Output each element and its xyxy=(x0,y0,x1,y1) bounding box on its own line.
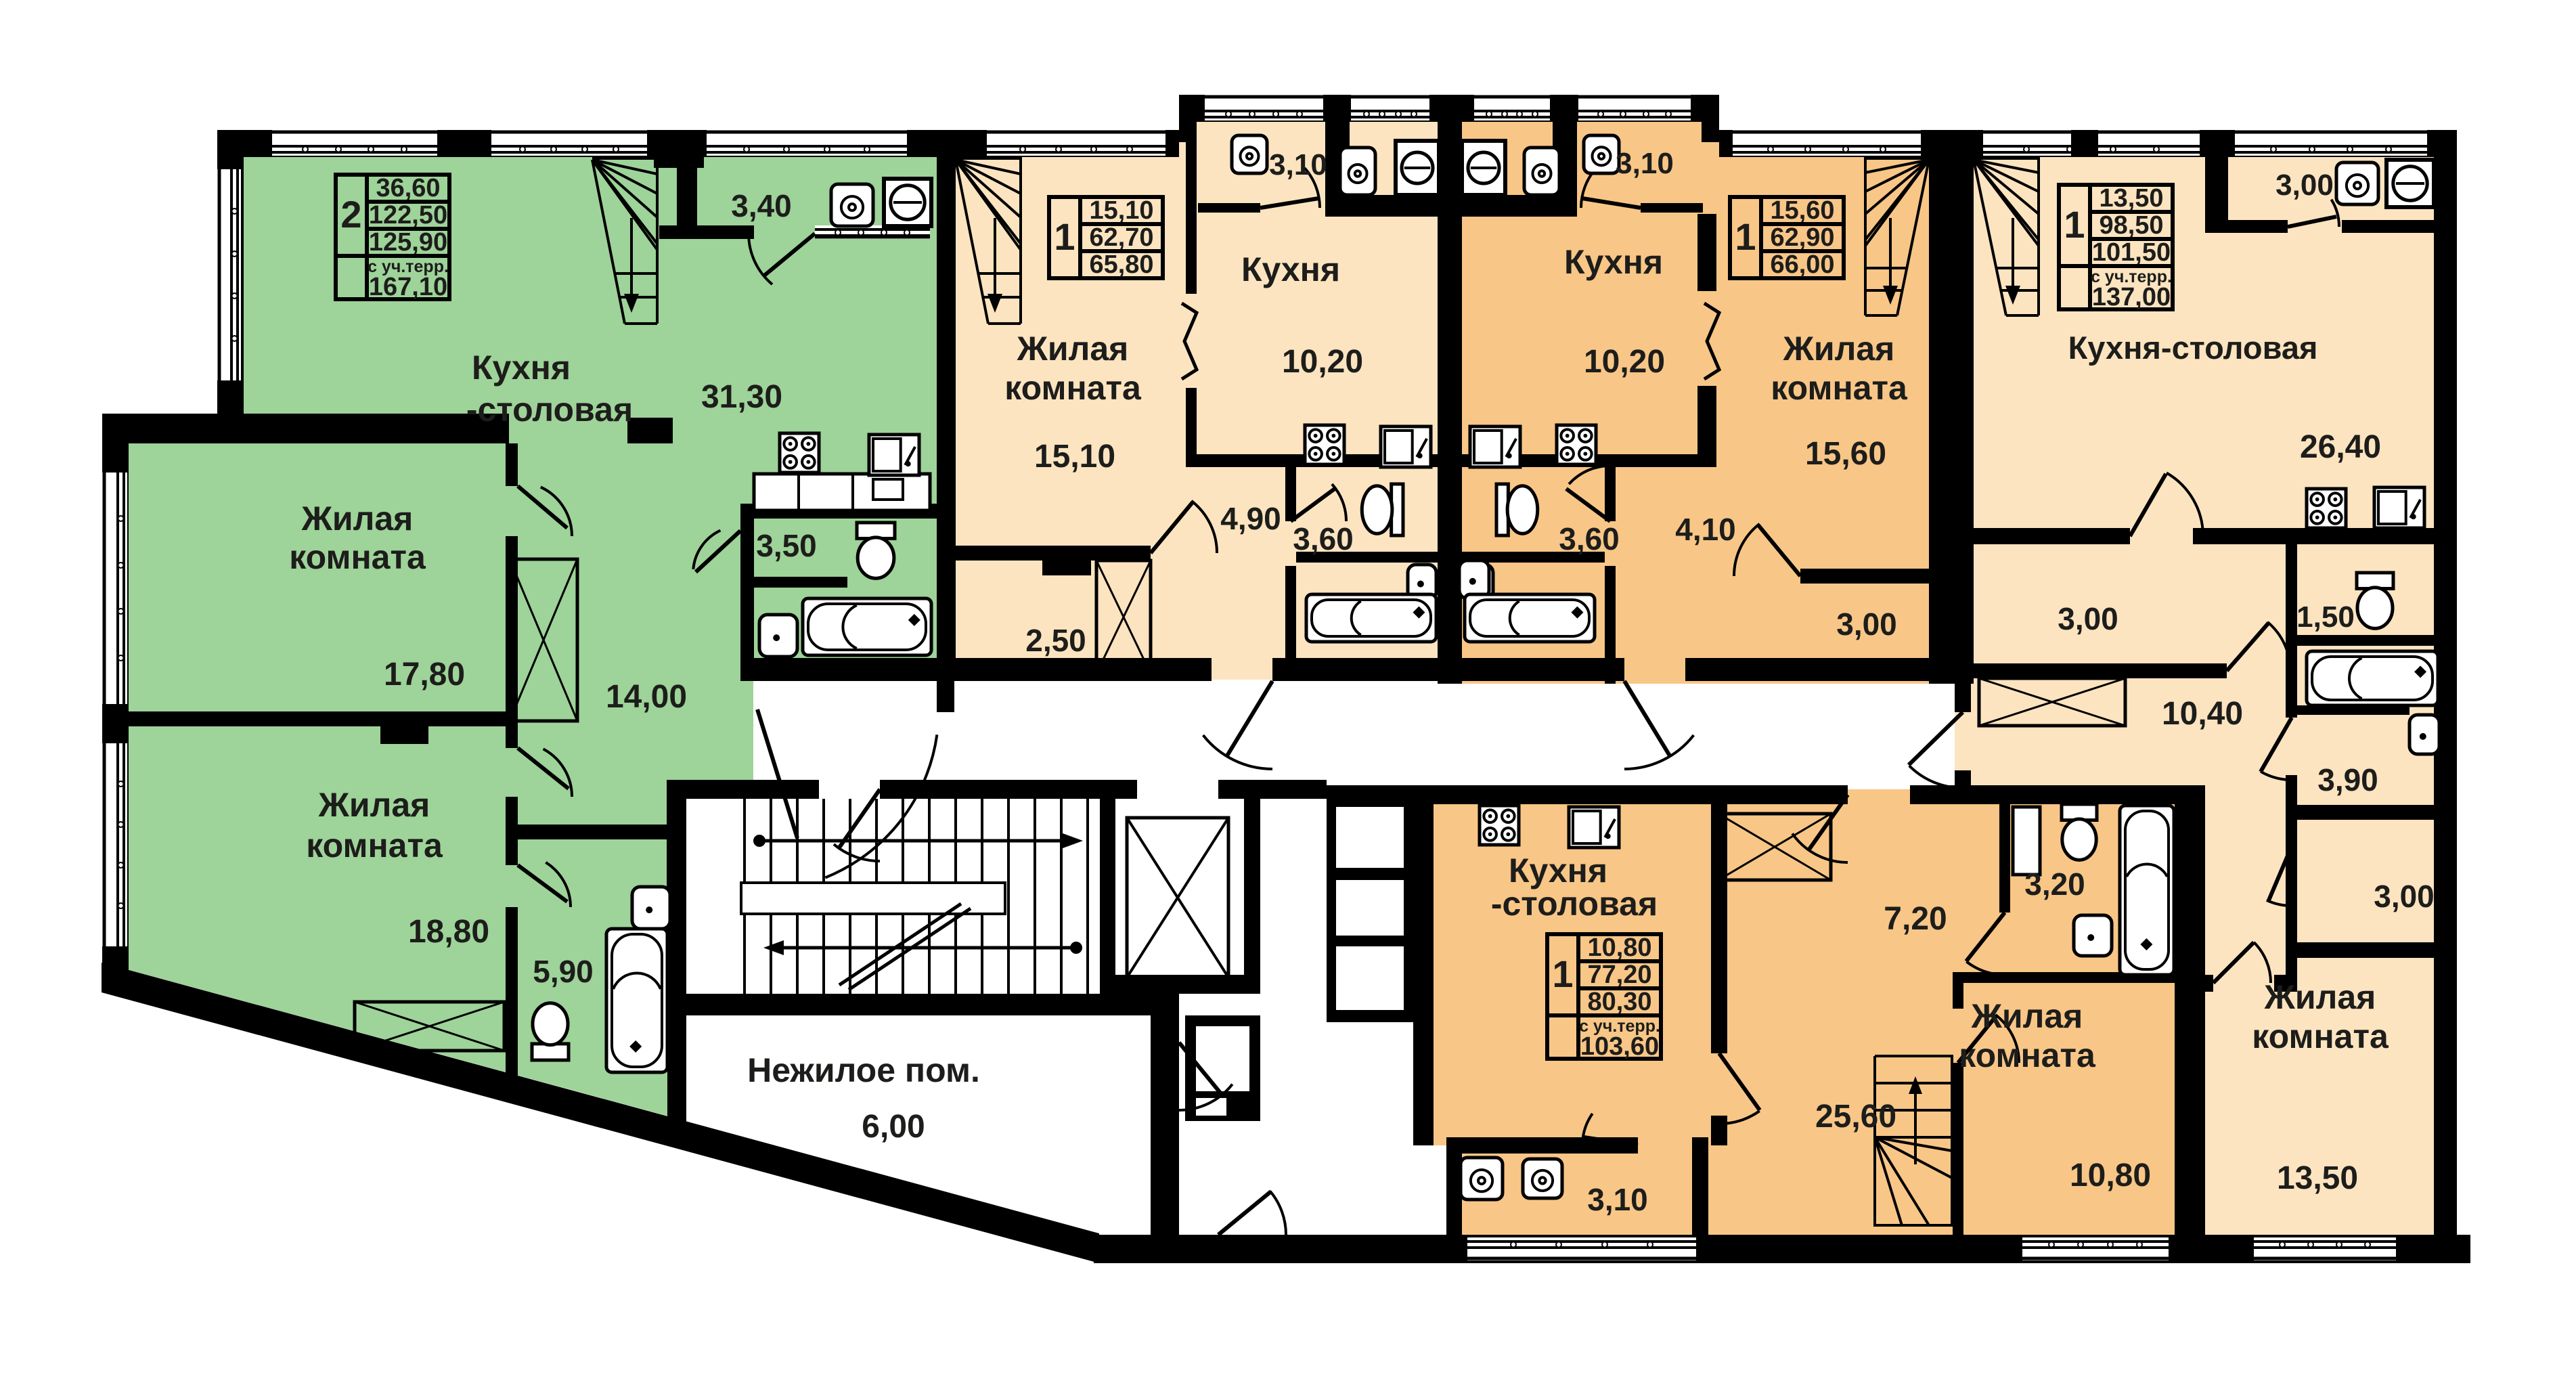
svg-text:26,40: 26,40 xyxy=(2300,429,2381,465)
svg-text:13,50: 13,50 xyxy=(2099,184,2163,213)
svg-text:Жилая: Жилая xyxy=(301,500,414,537)
svg-text:101,50: 101,50 xyxy=(2092,238,2171,267)
svg-text:36,60: 36,60 xyxy=(376,174,440,202)
svg-text:Жилая: Жилая xyxy=(2264,978,2376,1016)
svg-text:65,80: 65,80 xyxy=(1089,250,1153,279)
svg-text:3,10: 3,10 xyxy=(1616,147,1674,180)
svg-text:1,50: 1,50 xyxy=(2296,600,2355,634)
svg-text:Нежилое пом.: Нежилое пом. xyxy=(747,1051,980,1089)
svg-text:10,80: 10,80 xyxy=(1587,934,1651,962)
svg-text:1: 1 xyxy=(1054,215,1075,258)
svg-text:3,00: 3,00 xyxy=(2374,879,2435,914)
svg-text:62,90: 62,90 xyxy=(1770,223,1834,252)
svg-text:Кухня: Кухня xyxy=(472,349,571,387)
svg-text:18,80: 18,80 xyxy=(408,914,489,950)
svg-text:Жилая: Жилая xyxy=(1783,330,1895,368)
svg-text:комната: комната xyxy=(2252,1017,2389,1055)
svg-text:62,70: 62,70 xyxy=(1089,223,1153,252)
svg-text:122,50: 122,50 xyxy=(369,201,447,229)
svg-text:10,80: 10,80 xyxy=(2070,1158,2151,1193)
svg-text:3,10: 3,10 xyxy=(1587,1182,1648,1217)
svg-text:98,50: 98,50 xyxy=(2099,211,2163,240)
svg-text:10,20: 10,20 xyxy=(1282,344,1363,380)
svg-text:2,50: 2,50 xyxy=(1025,623,1086,658)
svg-text:1: 1 xyxy=(1735,215,1756,258)
svg-text:3,00: 3,00 xyxy=(2275,169,2334,202)
svg-text:3,00: 3,00 xyxy=(1836,607,1897,642)
svg-text:комната: комната xyxy=(1771,369,1908,407)
svg-text:Кухня: Кухня xyxy=(1241,250,1340,288)
svg-text:3,90: 3,90 xyxy=(2317,762,2378,797)
svg-text:80,30: 80,30 xyxy=(1587,988,1651,1016)
svg-text:6,00: 6,00 xyxy=(862,1109,925,1145)
svg-text:10,20: 10,20 xyxy=(1584,344,1665,380)
svg-text:Кухня: Кухня xyxy=(1564,243,1663,281)
svg-text:3,20: 3,20 xyxy=(2024,866,2085,902)
svg-text:4,10: 4,10 xyxy=(1675,512,1736,547)
svg-text:25,60: 25,60 xyxy=(1815,1099,1896,1135)
svg-text:2: 2 xyxy=(340,193,361,236)
svg-text:Жилая: Жилая xyxy=(1017,330,1129,368)
svg-text:15,60: 15,60 xyxy=(1770,196,1834,225)
svg-text:17,80: 17,80 xyxy=(384,657,465,693)
svg-text:4,90: 4,90 xyxy=(1220,501,1281,536)
svg-text:Кухня-столовая: Кухня-столовая xyxy=(2068,330,2318,366)
svg-text:103,60: 103,60 xyxy=(1580,1032,1659,1061)
svg-text:10,40: 10,40 xyxy=(2162,696,2243,732)
svg-text:комната: комната xyxy=(306,827,443,864)
svg-text:3,00: 3,00 xyxy=(2058,601,2118,636)
svg-text:комната: комната xyxy=(1959,1036,2096,1074)
svg-text:3,40: 3,40 xyxy=(731,188,792,223)
svg-text:31,30: 31,30 xyxy=(701,379,782,415)
svg-text:14,00: 14,00 xyxy=(606,679,687,715)
svg-text:комната: комната xyxy=(1004,369,1142,407)
svg-text:15,10: 15,10 xyxy=(1089,196,1153,225)
svg-text:15,60: 15,60 xyxy=(1805,436,1886,472)
svg-text:125,90: 125,90 xyxy=(369,228,447,257)
svg-text:7,20: 7,20 xyxy=(1884,901,1947,937)
svg-text:3,50: 3,50 xyxy=(756,528,817,563)
svg-text:Жилая: Жилая xyxy=(1971,997,2083,1035)
svg-text:167,10: 167,10 xyxy=(369,273,447,301)
svg-text:66,00: 66,00 xyxy=(1770,250,1834,279)
svg-text:-столовая: -столовая xyxy=(466,391,633,429)
svg-text:3,60: 3,60 xyxy=(1293,521,1354,556)
svg-text:15,10: 15,10 xyxy=(1034,439,1115,475)
svg-text:77,20: 77,20 xyxy=(1587,961,1651,989)
svg-text:Кухня: Кухня xyxy=(1509,852,1607,890)
svg-text:3,60: 3,60 xyxy=(1559,521,1620,556)
svg-text:13,50: 13,50 xyxy=(2277,1160,2358,1196)
svg-text:5,90: 5,90 xyxy=(533,954,594,989)
svg-text:1: 1 xyxy=(2064,203,2085,246)
svg-text:-столовая: -столовая xyxy=(1491,885,1658,923)
svg-text:Жилая: Жилая xyxy=(318,786,430,824)
svg-text:1: 1 xyxy=(1552,952,1573,995)
svg-text:3,10: 3,10 xyxy=(1269,148,1327,181)
svg-text:137,00: 137,00 xyxy=(2092,283,2171,311)
svg-text:комната: комната xyxy=(289,538,426,576)
